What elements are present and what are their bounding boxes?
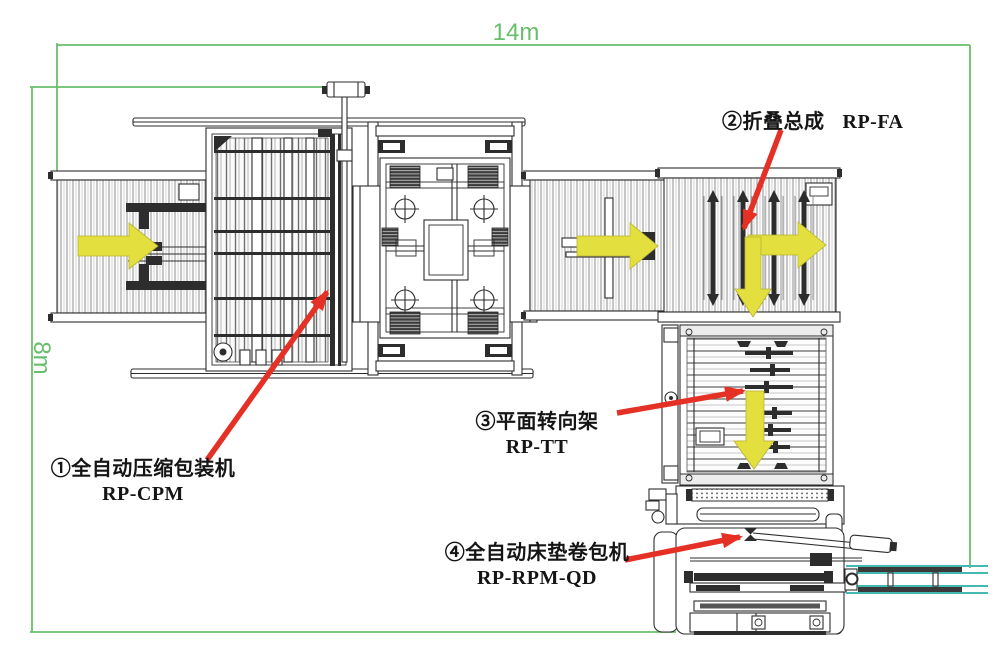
height-dimension-label: 8m: [28, 341, 55, 374]
folding-assembly-model: RP-FA: [843, 111, 904, 133]
label-folding-assembly: ②折叠总成RP-FA: [722, 105, 904, 134]
compression-machine-name: ①全自动压缩包装机: [50, 457, 236, 482]
rollpack-machine-model: RP-RPM-QD: [437, 566, 637, 591]
turning-frame-name: ③平面转向架: [452, 410, 622, 435]
rollpack-machine-name: ④全自动床垫卷包机: [437, 541, 637, 566]
folding-assembly-name: ②折叠总成: [722, 111, 825, 133]
compression-machine-model: RP-CPM: [50, 482, 236, 507]
press-machine: [353, 122, 537, 375]
layout-drawing-canvas: 14m 8m: [0, 0, 1000, 664]
label-compression-machine: ①全自动压缩包装机 RP-CPM: [50, 457, 236, 507]
exit-conveyor: [845, 566, 988, 593]
rollpack-motor: [646, 489, 677, 524]
rollpack-machine: [646, 486, 897, 635]
label-turning-frame: ③平面转向架 RP-TT: [452, 410, 622, 460]
turning-frame-model: RP-TT: [452, 435, 622, 460]
label-rollpack-machine: ④全自动床垫卷包机 RP-RPM-QD: [437, 541, 637, 591]
compression-chamber: [206, 128, 352, 371]
width-dimension-label: 14m: [493, 19, 540, 46]
